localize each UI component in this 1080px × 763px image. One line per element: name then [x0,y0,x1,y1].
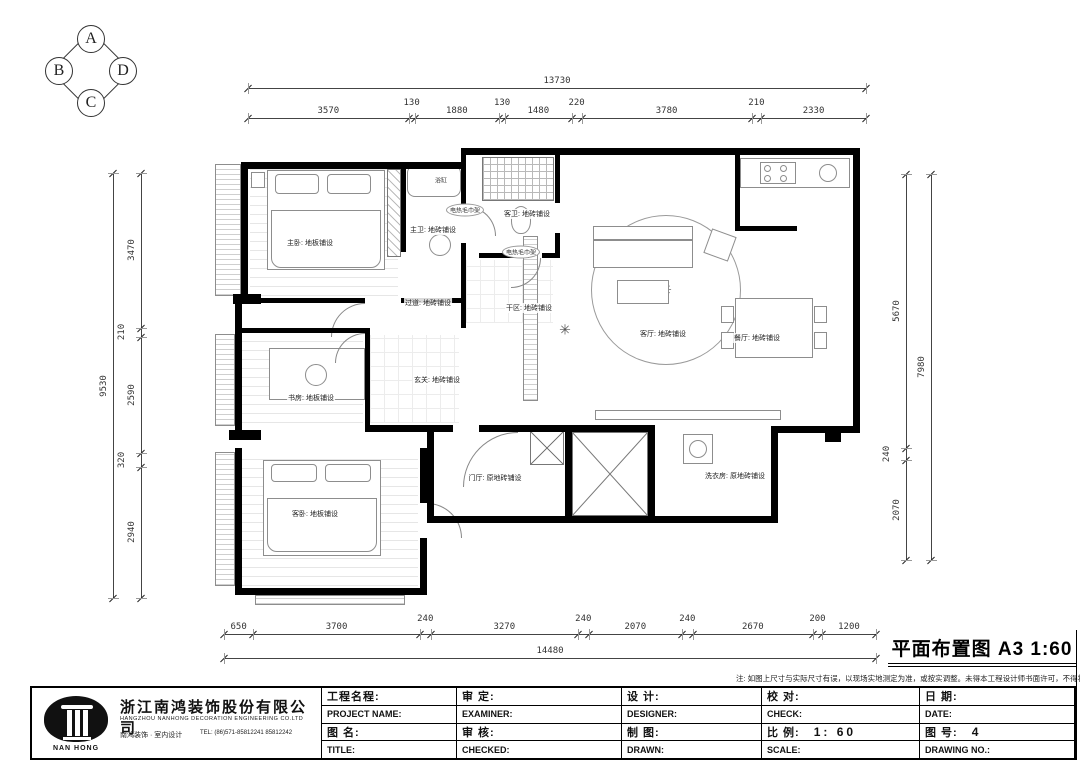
wall-segment [235,448,242,595]
room-label-living-room: 客厅: 地砖铺设 [639,329,687,339]
compass-letter-c: C [77,89,105,117]
burner [764,175,771,182]
extension-line [578,629,579,640]
titleblock-col-date: 日 期: DATE: 图 号: 4 DRAWING NO.: [920,688,1074,758]
extension-line [136,173,147,174]
pillow [327,174,371,194]
extension-line [108,598,119,599]
chair [721,332,734,349]
extension-line [901,560,912,561]
wall-segment [365,328,370,425]
extension-line [253,629,254,640]
room-label-study: 书房: 地板铺设 [287,393,335,403]
extension-line [589,629,590,640]
titleblock-col-project: 工程名程: PROJECT NAME: 图 名: TITLE: [322,688,457,758]
side-cabinet [595,410,781,420]
dimension-label: 2330 [802,106,826,116]
extension-line [505,113,506,124]
window-bay [255,595,405,605]
extension-line [136,328,147,329]
room-label-foyer: 门厅: 原地砖铺设 [468,473,523,483]
wall-segment [461,243,466,328]
window-bay [215,452,235,586]
compass-letter: D [117,62,129,80]
dimension-label: 1880 [445,106,469,116]
logo-column [67,710,72,736]
titleblock-col-check: 校 对: CHECK: 比 例: 1: 60 SCALE: [762,688,920,758]
extension-line [582,113,583,124]
wall-segment [565,516,655,523]
extension-line [136,467,147,468]
wall-segment [427,425,434,523]
extension-line [136,453,147,454]
coffee-table [617,280,669,304]
room-label-hallway: 过道: 地砖铺设 [404,298,452,308]
dimension-label: 210 [117,324,127,340]
wall-segment [479,425,568,432]
field-project-name-en: PROJECT NAME: [322,706,456,724]
wall-segment [771,433,778,521]
kitchen-sink [819,164,837,182]
field-drawing-no-en: DRAWING NO.: [920,741,1074,758]
dimension-label: 7980 [917,356,927,378]
dimension-label: 1200 [837,622,861,632]
field-scale-cn: 比 例: 1: 60 [762,724,919,742]
drawing-no-value: 4 [972,725,982,739]
dimension-label: 210 [747,98,765,108]
room-label-guest-bedroom: 客卧: 地板铺设 [291,509,339,519]
scale-label: 比 例: [767,724,800,740]
pillow [325,464,371,482]
plant-icon: ✳ [559,322,571,339]
washer-drum [689,440,707,458]
extension-line [572,113,573,124]
dimension-label: 2940 [127,522,137,544]
dimension-label: 3780 [655,106,679,116]
wall-segment [427,516,567,523]
duvet [267,498,377,552]
room-label-master-bedroom: 主卧: 地板铺设 [286,238,334,248]
extension-line [761,113,762,124]
logo-column [75,710,80,736]
extension-line [876,629,877,640]
dimension-label: 14480 [535,646,564,656]
extension-line [926,174,937,175]
extension-line [224,653,225,664]
field-date-cn: 日 期: [920,688,1074,706]
field-reviewer-cn: 审 核: [457,724,621,742]
field-scale-en: SCALE: [762,741,919,758]
compass-letter: C [86,94,97,112]
wall-segment [565,425,655,432]
dimension-line [248,88,866,89]
dimension-label: 2070 [892,499,902,521]
dimension-label: 3470 [127,240,137,262]
field-check-en: CHECK: [762,706,919,724]
wall-segment [643,516,778,523]
extension-line [901,174,912,175]
field-examiner-en: EXAMINER: [457,706,621,724]
extension-line [248,113,249,124]
extension-line [431,629,432,640]
wall-segment [243,298,365,303]
wall-segment [229,430,261,440]
room-label-laundry: 洗衣房: 原地砖铺设 [704,471,766,481]
title-block: NAN HONG 浙江南鸿装饰股份有限公司 HANGZHOU NANHONG D… [30,686,1076,760]
dimension-line [931,174,932,560]
titleblock-col-examiner: 审 定: EXAMINER: 审 核: CHECKED: [457,688,622,758]
dining-table [735,298,813,358]
wall-segment [243,162,461,169]
wall-segment [461,155,466,210]
room-label-guest-bath: 客卫: 地砖铺设 [503,209,551,219]
wall-segment [648,425,655,523]
floor-drain-box [530,431,564,465]
extension-line [926,560,937,561]
dimension-label: 5670 [892,300,902,322]
extension-line [415,113,416,124]
field-drawing-name-cn: 图 名: [322,724,456,742]
sofa-seat [593,240,693,268]
chair [814,306,827,323]
extension-line [822,629,823,640]
company-subtitle: 南鸿装饰 · 室内设计 [120,730,182,740]
wall-segment [365,425,453,432]
nightstand [251,172,265,188]
room-label-entry: 玄关: 地砖铺设 [413,375,461,385]
dimension-label: 240 [678,614,696,624]
field-project-name-cn: 工程名程: [322,688,456,706]
wall-segment [420,538,427,595]
wall-segment [241,162,248,298]
field-examiner-cn: 审 定: [457,688,621,706]
dimension-label: 650 [229,622,247,632]
room-label-dining-room: 餐厅: 地砖铺设 [733,333,781,343]
dry-area-floor [466,260,553,323]
wall-segment [461,148,860,155]
dimension-label: 130 [493,98,511,108]
dimension-label: 2070 [623,622,647,632]
dimension-label: 9530 [99,375,109,397]
dimension-line [224,634,876,635]
pillow [271,464,317,482]
compass-letter: A [85,30,97,48]
wall-segment [825,426,841,442]
wall-segment [235,328,367,333]
burner [780,175,787,182]
wall-segment [771,426,860,433]
sofa-back [593,226,693,240]
logo-column-base [63,737,91,740]
chair [721,306,734,323]
dimension-label: 240 [574,614,592,624]
dimension-label: 240 [416,614,434,624]
wall-segment [542,253,560,258]
extension-line [108,173,119,174]
extension-line [876,653,877,664]
field-drawn-cn: 制 图: [622,724,761,742]
wall-segment [853,155,860,426]
field-check-cn: 校 对: [762,688,919,706]
compass-letter-d: D [109,57,137,85]
chair [814,332,827,349]
compass-letter-a: A [77,25,105,53]
room-label-master-bath: 主卫: 地砖铺设 [409,225,457,235]
dimension-label: 2590 [127,384,137,406]
shower-area [482,157,554,201]
logo-column-cap [61,705,93,709]
extension-line [693,629,694,640]
pillow [275,174,319,194]
drawing-title: 平面布置图 A3 1:60 [888,634,1076,667]
floor-plan: ✳ ✳ [215,148,865,608]
compass-letter: B [54,62,65,80]
extension-line [901,448,912,449]
wall-segment [420,448,427,503]
fixture-label-bathtub: 浴缸 [435,176,447,185]
compass-logo: A B D C [45,25,135,115]
dimension-label: 200 [808,614,826,624]
field-designer-en: DESIGNER: [622,706,761,724]
window-bay [215,334,235,426]
window-bay [215,164,241,296]
extension-line [224,629,225,640]
wall-segment [401,162,406,252]
field-date-en: DATE: [920,706,1074,724]
extension-line [420,629,421,640]
company-tel: TEL: (86)571-85812241 85812242 [200,730,292,736]
dimension-line [113,173,114,598]
wall-segment [235,588,427,595]
drawing-no-label: 图 号: [925,724,958,740]
elevator-shaft-x [572,432,648,516]
extension-line [136,337,147,338]
company-block: NAN HONG 浙江南鸿装饰股份有限公司 HANGZHOU NANHONG D… [32,688,322,758]
study-chair [305,364,327,386]
wardrobe [387,169,401,257]
extension-line [752,113,753,124]
dimension-label: 3270 [492,622,516,632]
extension-line [136,598,147,599]
company-logo [44,696,108,742]
logo-text: NAN HONG [44,745,108,752]
wall-segment [565,425,572,523]
dimension-label: 2670 [741,622,765,632]
titleblock-col-designer: 设 计: DESIGNER: 制 图: DRAWN: [622,688,762,758]
extension-line [813,629,814,640]
dimension-label: 3700 [325,622,349,632]
wall-segment [735,155,740,230]
field-designer-cn: 设 计: [622,688,761,706]
room-label-dry-area: 干区: 地砖铺设 [505,303,553,313]
dimension-line [224,658,876,659]
dimension-label: 1480 [526,106,550,116]
dimension-label: 130 [402,98,420,108]
field-checked-en: CHECKED: [457,741,621,758]
wall-segment [235,304,242,430]
field-drawn-en: DRAWN: [622,741,761,758]
extension-line [866,113,867,124]
dimension-label: 3570 [317,106,341,116]
dimension-line [248,118,866,119]
fixture-label-towel-rack-2: 电热毛巾架 [502,246,540,259]
extension-line [248,83,249,94]
extension-line [866,83,867,94]
scale-value: 1: 60 [814,725,856,739]
extension-line [682,629,683,640]
dimension-label: 220 [567,98,585,108]
extension-line [409,113,410,124]
extension-line [901,460,912,461]
wall-segment [735,226,797,231]
sink [429,234,451,256]
company-name-en: HANGZHOU NANHONG DECORATION ENGINEERING … [120,716,303,722]
extension-line [499,113,500,124]
field-title-en: TITLE: [322,741,456,758]
burner [780,165,787,172]
compass-letter-b: B [45,57,73,85]
dimension-line [141,173,142,598]
dimension-label: 240 [882,446,892,462]
dimension-label: 13730 [542,76,571,86]
burner [764,165,771,172]
logo-column [83,710,88,736]
dimension-label: 320 [117,452,127,468]
sheet-border-line [1076,630,1077,760]
dimension-line [906,174,907,560]
wall-segment [555,155,560,203]
drawing-sheet: A B D C [0,0,1080,763]
note-text: 注: 如图上尺寸与实际尺寸有误，以现场实地测定为准，或按实调整。未得本工程设计师… [736,673,1076,684]
field-drawing-no-cn: 图 号: 4 [920,724,1074,742]
fixture-label-towel-rack-1: 电热毛巾架 [446,204,484,217]
